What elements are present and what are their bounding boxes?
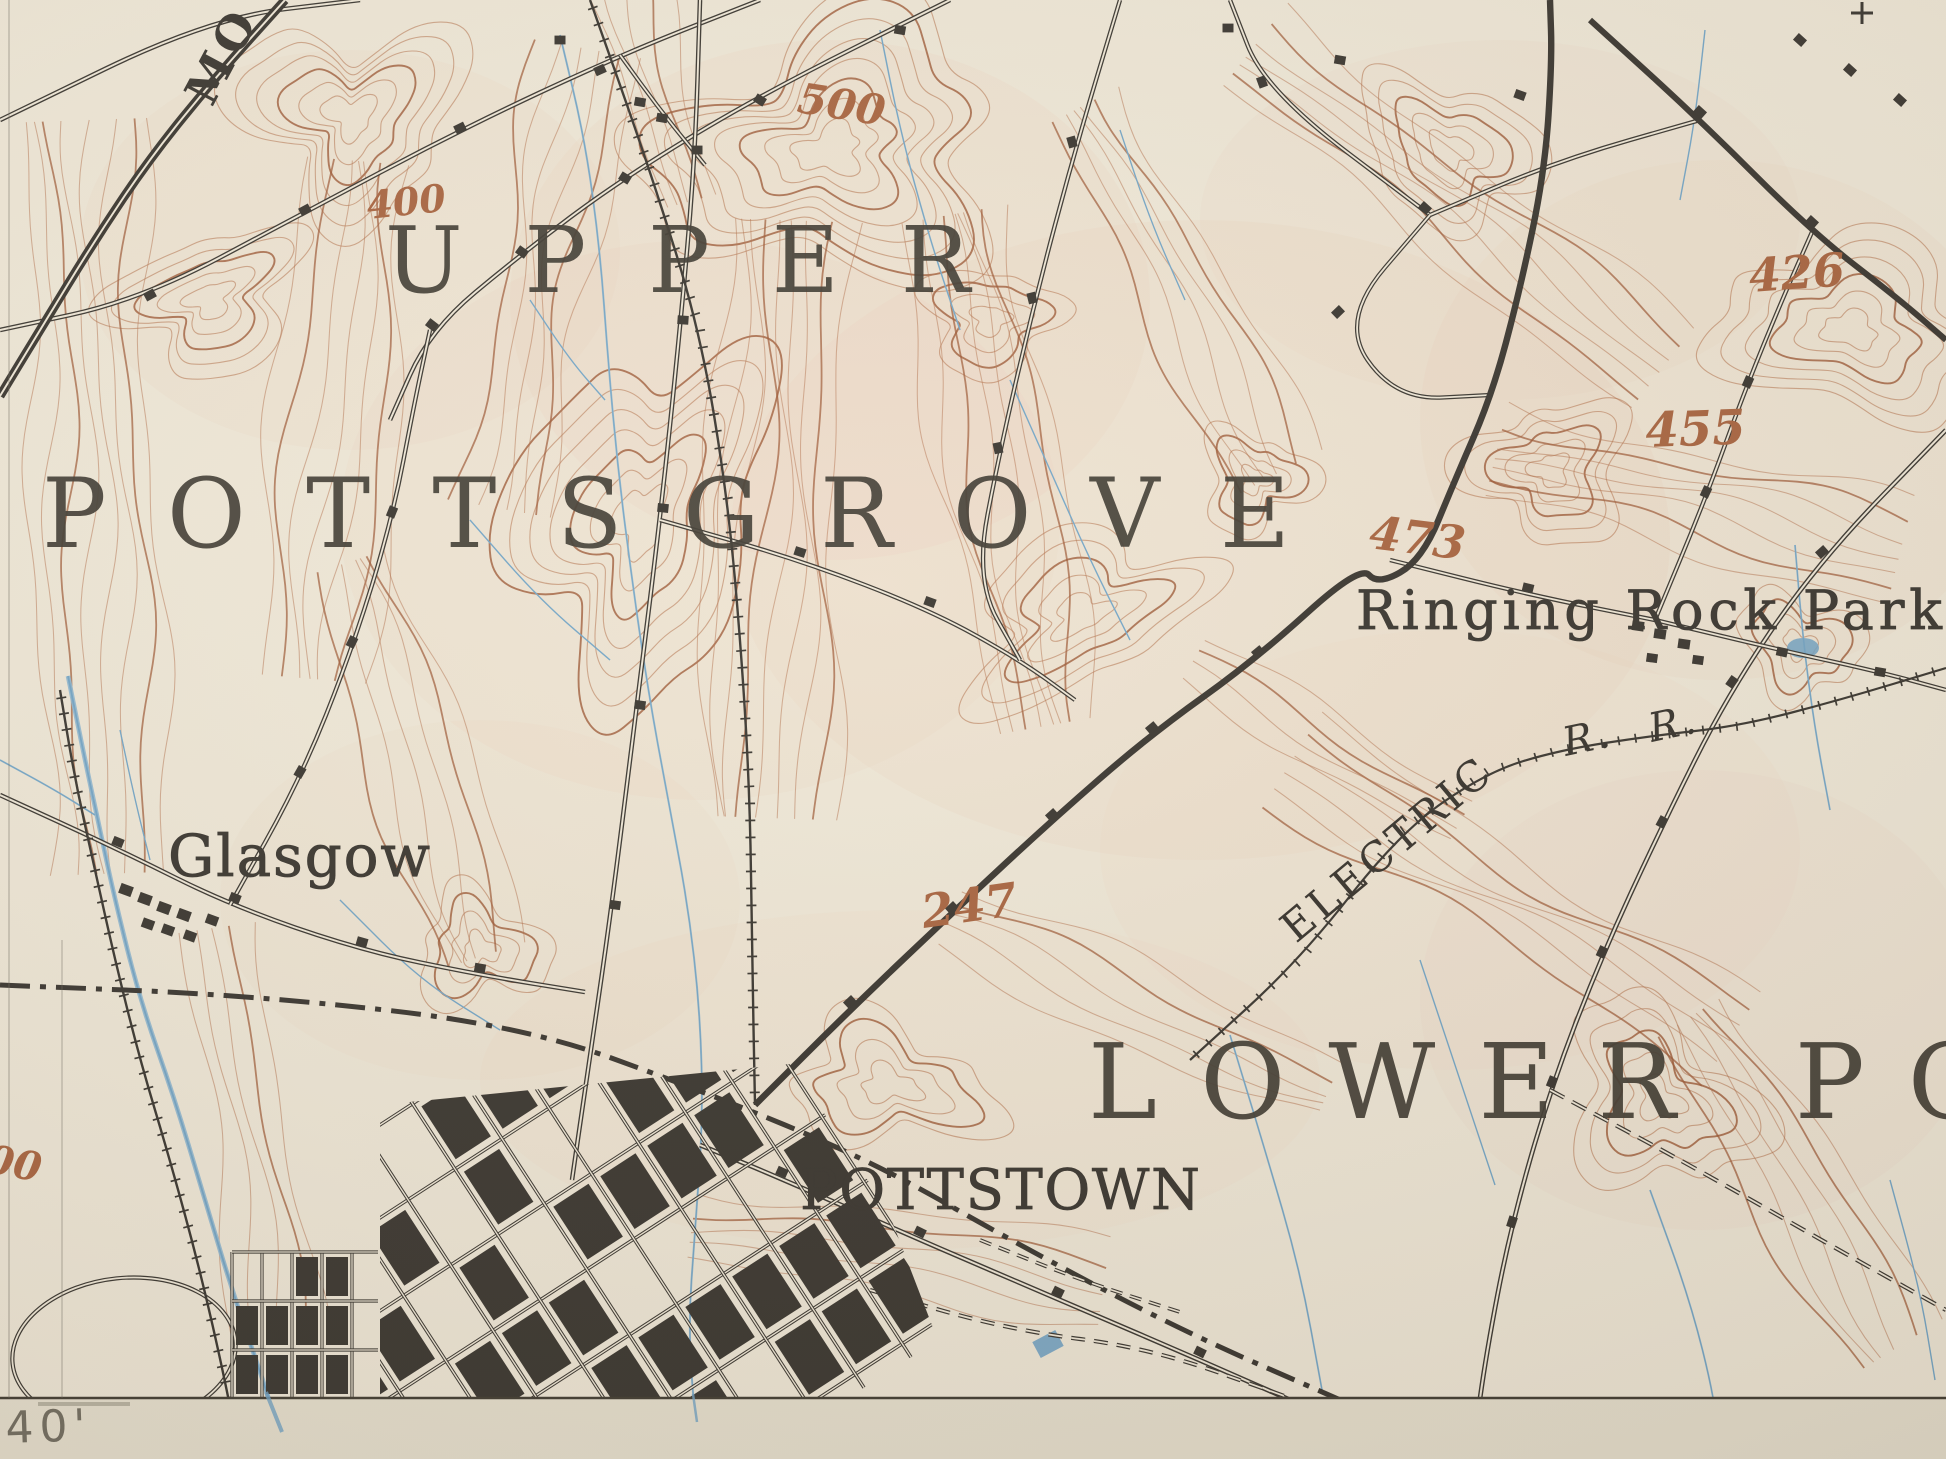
elevation-label-400: 400 — [364, 175, 448, 228]
place-label-glasgow: Glasgow — [168, 822, 430, 890]
place-label-pottstown: POTTSTOWN — [800, 1158, 1200, 1223]
elevation-label-00-fragment: 00 — [0, 1136, 45, 1192]
margin-coordinate-label: 40' — [5, 1400, 93, 1454]
topo-map-photo: UPPER POTTSGROVE LOWER PO POTTSTOWN Glas… — [0, 0, 1946, 1459]
topo-map-canvas: UPPER POTTSGROVE LOWER PO POTTSTOWN Glas… — [0, 0, 1946, 1459]
section-corner-cross-icon — [1851, 2, 1873, 24]
township-label-lower-pottsgrove: LOWER PO — [1088, 1021, 1946, 1143]
elevation-label-455: 455 — [1644, 400, 1746, 459]
elevation-label-426: 426 — [1747, 242, 1847, 303]
place-label-ringing-rock-park: Ringing Rock Park — [1356, 579, 1943, 642]
